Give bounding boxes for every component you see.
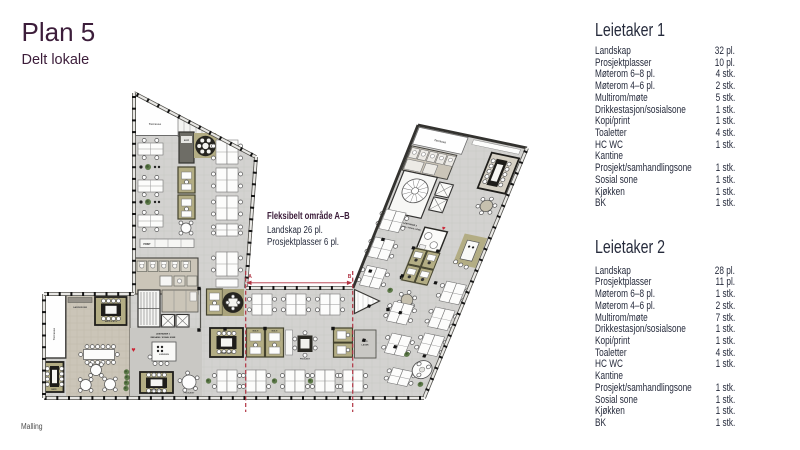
svg-text:MULTI: MULTI [272, 331, 278, 333]
svg-text:GARDEROBE: GARDEROBE [73, 306, 88, 309]
svg-text:Terrasse: Terrasse [149, 122, 162, 126]
svg-text:INNGANG / SOSIAL SONE: INNGANG / SOSIAL SONE [151, 336, 176, 339]
svg-text:B: B [348, 274, 352, 280]
svg-text:KJØKKEN: KJØKKEN [159, 354, 169, 356]
svg-text:♥: ♥ [131, 347, 135, 354]
svg-text:A: A [248, 274, 252, 280]
svg-text:MØTE: MØTE [51, 389, 57, 391]
svg-text:MØTE 6-8 PL: MØTE 6-8 PL [105, 321, 118, 323]
svg-text:Terrasse: Terrasse [52, 328, 56, 341]
svg-text:MØTE 6-8 PL: MØTE 6-8 PL [150, 390, 163, 392]
svg-text:PROSJEKT: PROSJEKT [184, 393, 196, 395]
svg-text:MULTI: MULTI [253, 331, 259, 333]
svg-text:MØTE 6-8 PL: MØTE 6-8 PL [220, 353, 233, 355]
svg-text:PRINT: PRINT [143, 243, 151, 246]
svg-text:KOPI: KOPI [184, 140, 190, 142]
svg-text:LEIETAKER 1: LEIETAKER 1 [156, 333, 171, 336]
svg-text:PROSJEKT: PROSJEKT [300, 359, 311, 361]
svg-text:LAGER: LAGER [362, 344, 370, 347]
